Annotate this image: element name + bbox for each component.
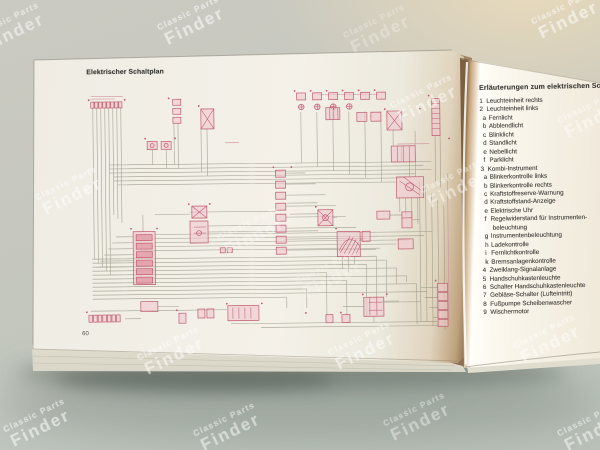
schematic-title: Elektrischer Schaltplan	[86, 68, 164, 76]
wiring-diagram	[79, 83, 457, 337]
book-photo: Elektrischer Schaltplan	[0, 0, 600, 450]
explanations-list: 1Leuchteinheit rechts2Leuchteinheit link…	[479, 95, 600, 318]
connector-strip-right	[438, 283, 448, 326]
diagram-wires	[89, 104, 447, 333]
connector-strip-bottom	[89, 315, 120, 322]
right-page-content: Erläuterungen zum elektrischen Schaltpla…	[479, 82, 600, 318]
page-number: 60	[82, 331, 89, 337]
connector-column	[275, 170, 286, 254]
fuse-box	[133, 232, 156, 285]
component-details	[191, 103, 442, 320]
connector-strip-top	[91, 102, 122, 108]
